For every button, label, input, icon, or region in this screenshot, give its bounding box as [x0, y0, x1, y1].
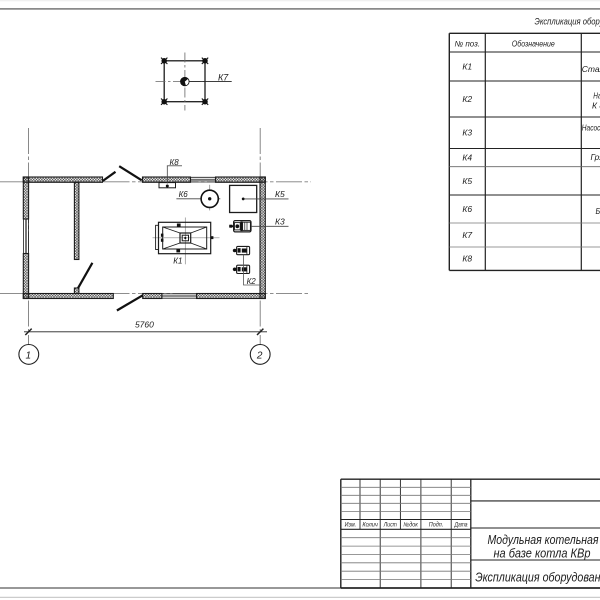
svg-text:К 80-50: К 80-50: [592, 101, 600, 111]
svg-text:К5: К5: [275, 189, 285, 199]
svg-text:К7: К7: [218, 72, 229, 82]
svg-text:К8: К8: [462, 254, 472, 264]
svg-text:Грязевик: Грязевик: [591, 152, 600, 162]
svg-text:Обозначение: Обозначение: [512, 40, 555, 49]
svg-text:Колич: Колич: [362, 523, 378, 529]
svg-text:Изм.: Изм.: [345, 523, 357, 529]
svg-text:К2: К2: [247, 277, 257, 286]
svg-text:Стальной котел КВр-0,8: Стальной котел КВр-0,8: [582, 64, 600, 74]
svg-text:К8: К8: [170, 158, 180, 167]
svg-text:Дата: Дата: [454, 523, 468, 529]
svg-text:2: 2: [256, 350, 263, 361]
svg-text:1: 1: [26, 350, 32, 361]
svg-text:Бак расширительный: Бак расширительный: [596, 206, 600, 216]
svg-text:Модульная котельная: Модульная котельная: [488, 533, 599, 547]
svg-text:К1: К1: [173, 257, 182, 266]
svg-text:№док: №док: [403, 522, 419, 529]
svg-text:Экспликация оборудования: Экспликация оборудования: [475, 570, 600, 585]
svg-text:Подп.: Подп.: [429, 523, 444, 529]
svg-text:Лист: Лист: [383, 523, 397, 529]
svg-text:К7: К7: [462, 230, 472, 240]
svg-text:К2: К2: [462, 94, 472, 104]
svg-text:№ поз.: № поз.: [455, 40, 481, 49]
svg-text:Насос сетевой: Насос сетевой: [593, 91, 600, 101]
svg-text:Экспликация оборудования: Экспликация оборудования: [535, 17, 600, 28]
svg-text:К3: К3: [275, 217, 285, 227]
svg-text:Насос подпиточный: Насос подпиточный: [582, 123, 600, 133]
svg-text:на базе котла КВр: на базе котла КВр: [494, 547, 591, 561]
svg-text:К6: К6: [462, 204, 472, 214]
svg-text:К1: К1: [462, 62, 472, 72]
svg-text:К6: К6: [179, 190, 189, 199]
svg-text:К4: К4: [462, 153, 472, 163]
svg-text:5760: 5760: [135, 319, 154, 329]
svg-text:К5: К5: [462, 176, 472, 186]
svg-text:К3: К3: [462, 128, 472, 138]
